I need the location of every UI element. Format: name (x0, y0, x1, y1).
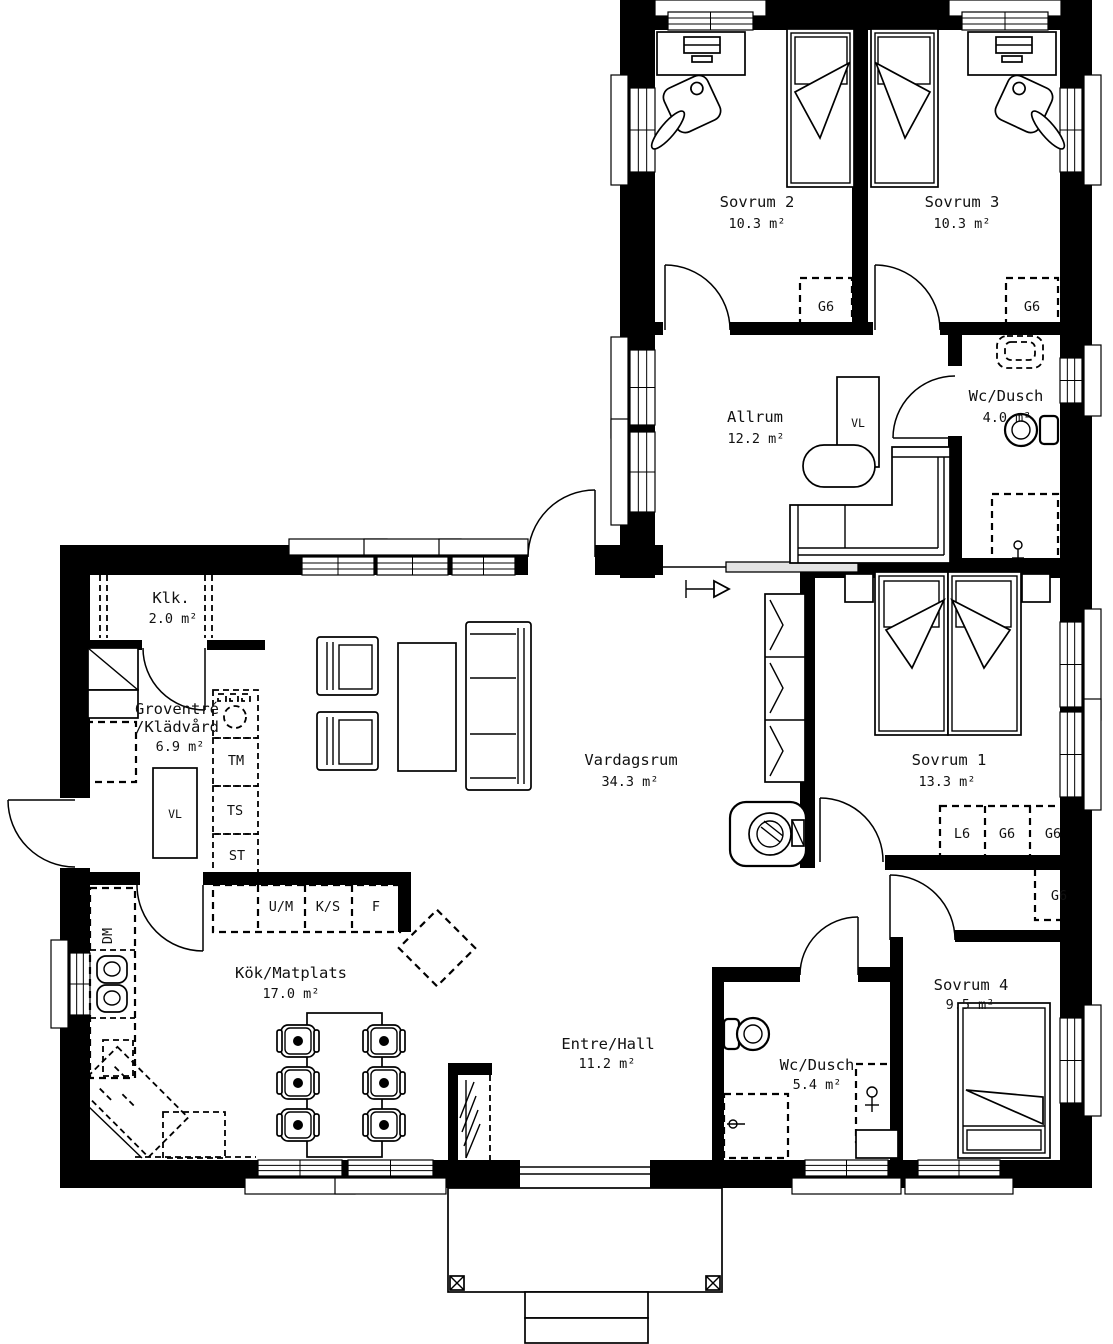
bed-icon (787, 29, 854, 187)
bed-icon (871, 29, 938, 187)
room-label-groventre-1: Groventré (135, 700, 219, 718)
bench-icon (88, 648, 138, 718)
fixture-label-ks: K/S (316, 899, 340, 915)
room-label-sovrum1: Sovrum 1 (912, 751, 987, 769)
room-area-sovrum1: 13.3 m² (919, 774, 976, 790)
room-label-wc-nedre: Wc/Dusch (780, 1056, 855, 1074)
wardrobe-label: G6 (1051, 888, 1067, 904)
nightstand-icon (1022, 574, 1050, 602)
room-area-allrum: 12.2 m² (728, 431, 785, 447)
window-icon (655, 0, 766, 30)
fixture-label-st: ST (229, 848, 245, 864)
room-label-allrum: Allrum (727, 408, 783, 426)
bed-icon (958, 1003, 1050, 1158)
oval-table-icon (803, 445, 875, 487)
window-icon (51, 940, 90, 1028)
window-icon (439, 539, 528, 575)
wardrobe-label: L6 (954, 826, 970, 842)
fixture-label-vl: VL (168, 807, 182, 821)
toilet-icon (724, 1018, 769, 1050)
window-icon (1060, 699, 1101, 810)
floor-plan-page: Sovrum 2 10.3 m² Sovrum 3 10.3 m² Allrum… (0, 0, 1113, 1344)
bookshelf-icon (765, 594, 805, 782)
room-label-entre: Entre/Hall (561, 1035, 654, 1053)
fixture-label-vl: VL (851, 416, 865, 430)
window-icon (1060, 1005, 1101, 1116)
fixture-label-tm: TM (228, 753, 244, 769)
room-label-kok: Kök/Matplats (235, 964, 347, 982)
porch-post-icon (450, 1276, 464, 1290)
sofa-icon (466, 622, 531, 790)
room-label-vardagsrum: Vardagsrum (584, 751, 677, 769)
room-label-sovrum2: Sovrum 2 (720, 193, 795, 211)
window-icon (611, 419, 655, 525)
room-area-sovrum2: 10.3 m² (729, 216, 786, 232)
coffee-table-icon (398, 643, 456, 771)
nightstand-icon (845, 574, 873, 602)
room-label-sovrum4: Sovrum 4 (934, 976, 1009, 994)
wardrobe-label: G6 (1045, 826, 1061, 842)
room-label-groventre-2: /Klädvård (135, 718, 219, 736)
wardrobe-label: G6 (818, 299, 834, 315)
room-area-sovrum3: 10.3 m² (934, 216, 991, 232)
room-area-entre: 11.2 m² (579, 1056, 636, 1072)
fixture-label-um: U/M (269, 899, 293, 915)
room-label-sovrum3: Sovrum 3 (925, 193, 1000, 211)
room-area-wc-ovre: 4.0 m² (983, 410, 1032, 426)
fireplace-icon (730, 802, 806, 866)
bed-icon (948, 572, 1021, 735)
wardrobe-label: G6 (1024, 299, 1040, 315)
room-label-klk: Klk. (152, 589, 189, 607)
step-icon (525, 1318, 648, 1343)
window-icon (611, 75, 655, 185)
fixture-label-dm: DM (100, 928, 116, 944)
step-icon (525, 1292, 648, 1318)
fixture-label-f: F (372, 899, 380, 915)
room-label-wc-ovre: Wc/Dusch (969, 387, 1044, 405)
armchair-icon (317, 637, 378, 695)
wardrobe-label: G6 (999, 826, 1015, 842)
room-area-vardagsrum: 34.3 m² (602, 774, 659, 790)
room-area-kok: 17.0 m² (263, 986, 320, 1002)
floor-plan-drawing: Sovrum 2 10.3 m² Sovrum 3 10.3 m² Allrum… (0, 0, 1113, 1344)
room-area-sovrum4: 9.5 m² (946, 997, 995, 1013)
armchair-icon (317, 712, 378, 770)
bed-icon (875, 572, 948, 735)
nightstand-icon (856, 1130, 898, 1158)
room-area-klk: 2.0 m² (149, 611, 198, 627)
window-icon (949, 0, 1061, 30)
fixture-label-ts: TS (227, 803, 243, 819)
room-area-groventre: 6.9 m² (156, 739, 205, 755)
porch-post-icon (706, 1276, 720, 1290)
window-icon (1060, 75, 1101, 185)
room-area-wc-nedre: 5.4 m² (793, 1077, 842, 1093)
